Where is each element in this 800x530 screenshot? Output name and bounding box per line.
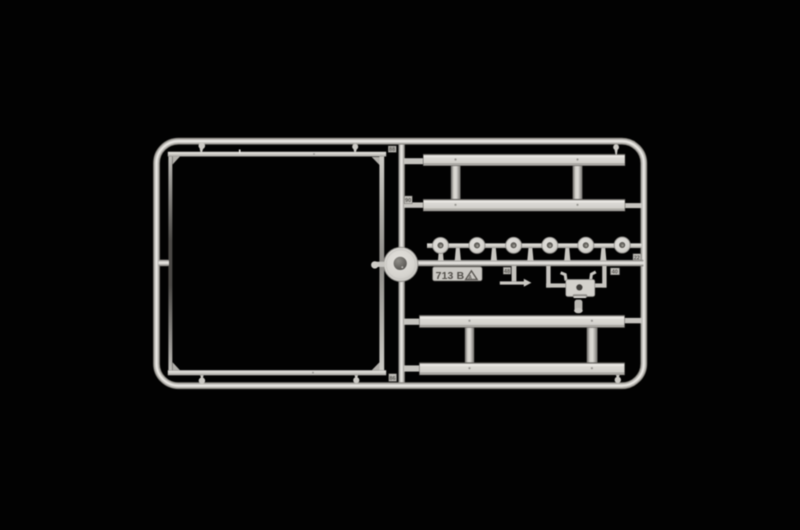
svg-text:86: 86	[389, 376, 395, 382]
svg-text:40: 40	[612, 270, 618, 276]
svg-text:88: 88	[389, 147, 395, 153]
svg-text:713 B: 713 B	[436, 271, 465, 282]
svg-text:48: 48	[504, 269, 510, 275]
svg-text:90: 90	[405, 198, 411, 204]
svg-text:22: 22	[634, 255, 640, 261]
svg-text:A: A	[468, 275, 472, 281]
